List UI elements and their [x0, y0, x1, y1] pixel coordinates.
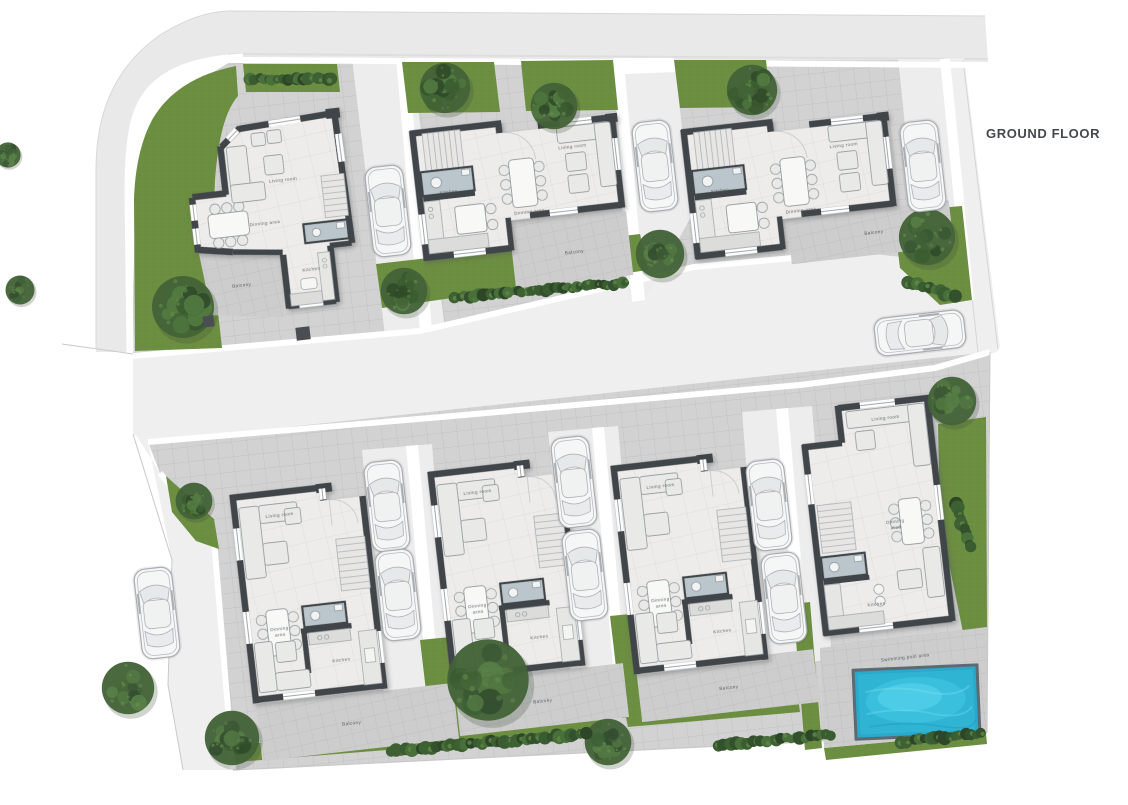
svg-text:GROUND FLOOR: GROUND FLOOR [986, 126, 1100, 141]
